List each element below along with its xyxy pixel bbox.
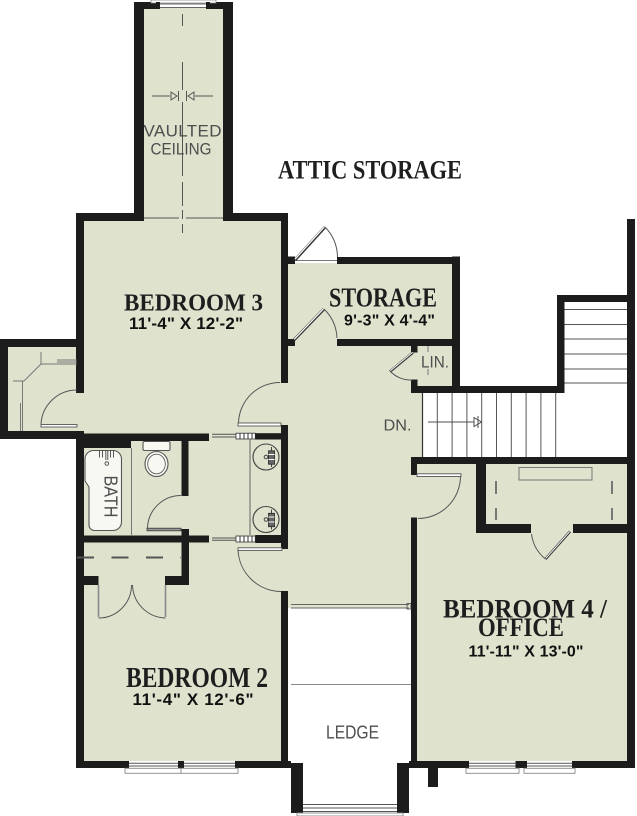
svg-text:STORAGE: STORAGE bbox=[329, 283, 437, 313]
svg-text:11'-11" X 13'-0": 11'-11" X 13'-0" bbox=[469, 644, 584, 661]
svg-text:9'-3" X 4'-4": 9'-3" X 4'-4" bbox=[344, 313, 435, 330]
svg-text:OFFICE: OFFICE bbox=[478, 613, 564, 642]
svg-text:11'-4" X 12'-6": 11'-4" X 12'-6" bbox=[133, 690, 254, 709]
svg-text:BATH: BATH bbox=[101, 476, 121, 518]
svg-text:LEDGE: LEDGE bbox=[326, 723, 379, 743]
svg-text:VAULTED: VAULTED bbox=[144, 122, 222, 141]
svg-text:DN.: DN. bbox=[384, 418, 412, 435]
svg-text:CEILING: CEILING bbox=[151, 141, 212, 159]
svg-text:11'-4" X 12'-2": 11'-4" X 12'-2" bbox=[129, 314, 243, 333]
svg-text:ATTIC STORAGE: ATTIC STORAGE bbox=[278, 156, 462, 185]
svg-text:BEDROOM 3: BEDROOM 3 bbox=[124, 291, 263, 317]
svg-text:LIN.: LIN. bbox=[421, 354, 449, 372]
